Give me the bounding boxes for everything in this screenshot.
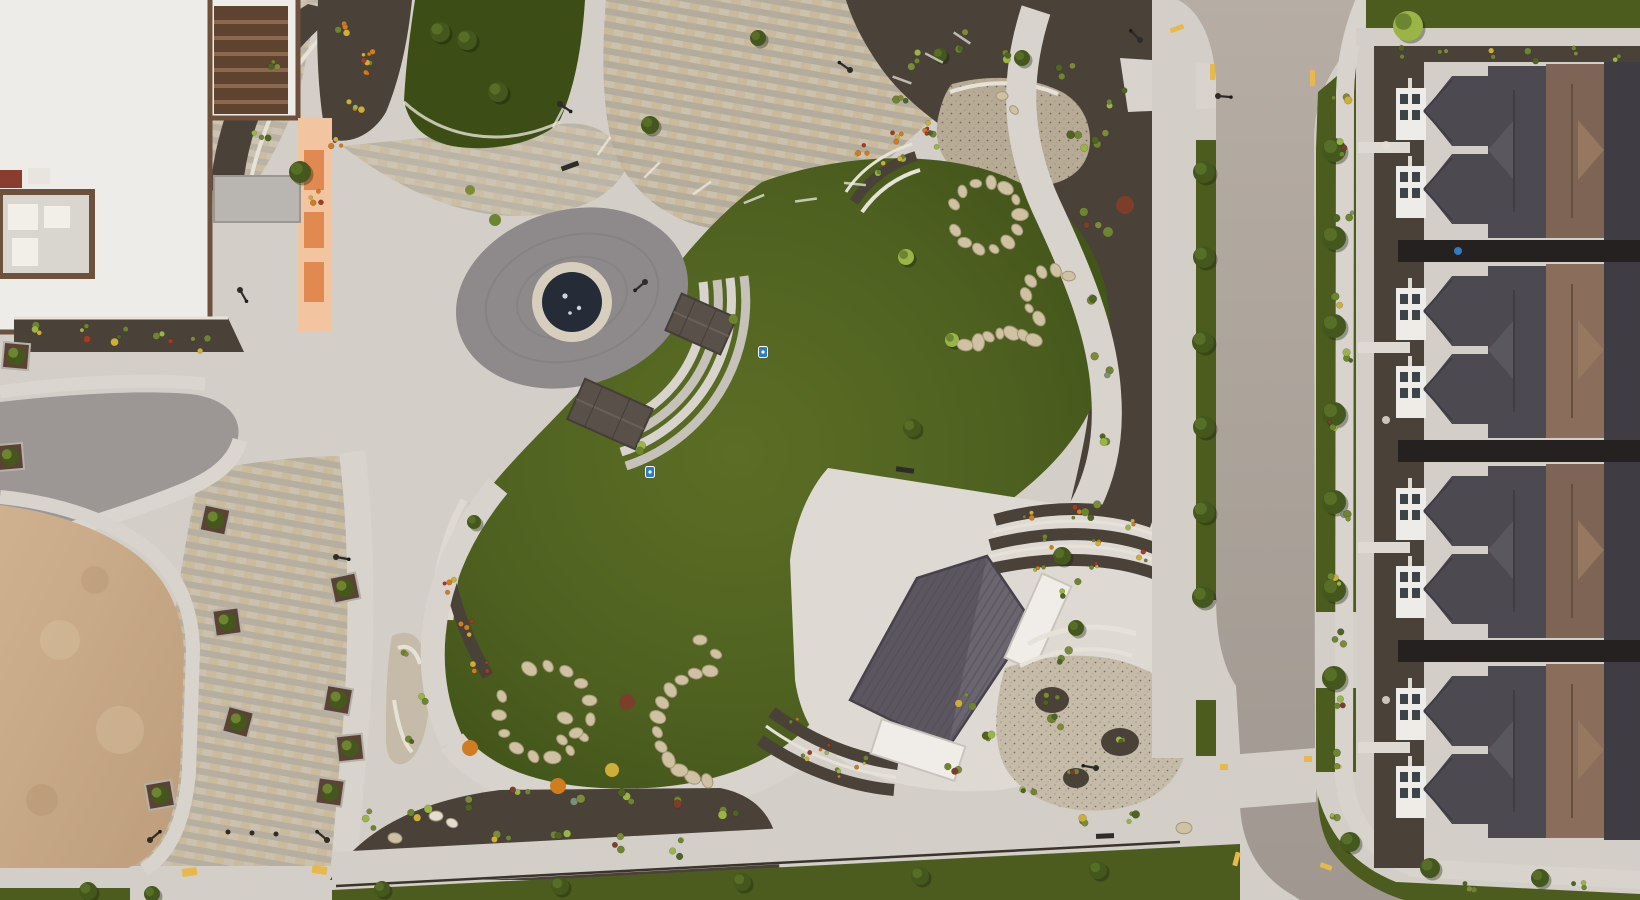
tree-canopy-highlight bbox=[1422, 860, 1433, 871]
shrub bbox=[525, 789, 531, 795]
park-side-sidewalk bbox=[1152, 0, 1196, 758]
shrub bbox=[1329, 424, 1335, 430]
shrub bbox=[353, 105, 358, 110]
landscape-dot bbox=[1382, 696, 1390, 704]
shrub bbox=[1107, 99, 1112, 104]
shrub bbox=[805, 757, 810, 762]
shrub bbox=[673, 799, 682, 808]
shrub bbox=[617, 833, 624, 840]
shrub bbox=[1079, 208, 1088, 217]
townhome-window bbox=[1400, 588, 1408, 598]
shrub bbox=[470, 619, 474, 623]
landscape-dot bbox=[226, 830, 231, 835]
street-lamp-base bbox=[642, 279, 648, 285]
shrub bbox=[1044, 692, 1050, 698]
shrub bbox=[1121, 87, 1127, 93]
shrub bbox=[894, 139, 899, 144]
tree-canopy-highlight bbox=[1054, 548, 1064, 558]
shrub bbox=[465, 796, 472, 803]
shrub bbox=[1055, 695, 1060, 700]
shrub bbox=[361, 58, 366, 63]
townhome-fence bbox=[1408, 756, 1412, 816]
landscape-dot bbox=[550, 778, 566, 794]
building-accent-panel-2 bbox=[304, 212, 324, 248]
alley-band-2 bbox=[1398, 440, 1640, 462]
townhome-far-roof bbox=[1604, 462, 1640, 640]
tree-canopy-highlight bbox=[1324, 668, 1337, 681]
tree-canopy-highlight bbox=[912, 868, 922, 878]
tree-planter bbox=[330, 573, 361, 604]
shrub bbox=[1072, 516, 1075, 519]
rooftop-unit-2 bbox=[44, 206, 70, 228]
boulder bbox=[970, 179, 982, 188]
fountain-jet-3 bbox=[568, 311, 572, 315]
landscape-dot bbox=[1382, 416, 1390, 424]
shrub bbox=[464, 625, 469, 630]
street-lamp-head bbox=[569, 110, 573, 114]
townhome-window bbox=[1412, 310, 1420, 320]
tree-canopy-highlight bbox=[552, 878, 562, 888]
shrub bbox=[1089, 295, 1097, 303]
shrub bbox=[1100, 438, 1108, 446]
boulder bbox=[586, 713, 596, 726]
shrub bbox=[612, 842, 618, 848]
townhome-fence bbox=[1408, 556, 1412, 616]
townhome-fence bbox=[1408, 678, 1412, 738]
tree-canopy-highlight bbox=[1195, 418, 1207, 430]
townhome-window bbox=[1400, 310, 1408, 320]
shrub bbox=[204, 335, 211, 342]
west-verge-grass bbox=[1196, 140, 1216, 600]
street-lamp-head bbox=[1129, 29, 1133, 33]
townhome-window bbox=[1412, 172, 1420, 182]
shrub bbox=[342, 24, 348, 30]
shrub bbox=[1118, 739, 1122, 743]
shrub bbox=[1059, 589, 1064, 594]
street-lamp-head bbox=[347, 557, 351, 561]
townhome-front-walk bbox=[1358, 342, 1410, 353]
shrub bbox=[363, 70, 368, 75]
shrub bbox=[1343, 349, 1351, 357]
shrub bbox=[1571, 881, 1576, 886]
shrub bbox=[1088, 514, 1094, 520]
shrub bbox=[1581, 880, 1586, 885]
townhome-window bbox=[1400, 494, 1408, 504]
townhome-building bbox=[1358, 62, 1640, 240]
townhome-fence bbox=[1408, 478, 1412, 538]
shrub bbox=[1031, 789, 1037, 795]
townhome-window bbox=[1400, 572, 1408, 582]
townhome-far-roof bbox=[1604, 662, 1640, 840]
tree-canopy-highlight bbox=[1090, 862, 1100, 872]
shrub bbox=[1337, 696, 1344, 703]
shrub bbox=[877, 170, 881, 174]
shrub bbox=[1350, 211, 1354, 215]
yellow-curb-marking bbox=[1220, 764, 1228, 770]
shrub bbox=[413, 814, 420, 821]
shrub bbox=[1080, 144, 1088, 152]
townhome-far-roof bbox=[1604, 262, 1640, 440]
tree-canopy-highlight bbox=[291, 163, 303, 175]
townhome-fence bbox=[1408, 356, 1412, 416]
townhome-window bbox=[1412, 372, 1420, 382]
townhome-window bbox=[1400, 372, 1408, 382]
tree-planter bbox=[0, 443, 24, 471]
shrub bbox=[470, 661, 476, 667]
shrub bbox=[819, 748, 822, 751]
shrub bbox=[1067, 131, 1075, 139]
street-lamp-base bbox=[1215, 93, 1221, 99]
boulder bbox=[582, 695, 597, 706]
shrub bbox=[881, 161, 886, 166]
townhome-window bbox=[1400, 788, 1408, 798]
shrub bbox=[422, 698, 429, 705]
tree-canopy-highlight bbox=[490, 84, 501, 95]
shrub bbox=[84, 324, 89, 329]
shrub bbox=[897, 156, 902, 161]
tree-planter bbox=[212, 607, 241, 636]
shrub bbox=[1491, 54, 1496, 59]
street-lamp-base bbox=[1093, 765, 1099, 771]
shrub bbox=[1060, 593, 1065, 598]
shrub bbox=[1399, 45, 1405, 51]
boulder bbox=[693, 635, 707, 645]
shrub bbox=[1400, 54, 1405, 59]
townhome-window bbox=[1400, 188, 1408, 198]
boulder bbox=[499, 729, 510, 737]
shrub bbox=[451, 577, 456, 582]
boulder bbox=[1011, 208, 1029, 221]
townhome-window bbox=[1412, 94, 1420, 104]
west-verge-grass-2 bbox=[1196, 700, 1216, 756]
townhome-fence bbox=[1408, 156, 1412, 216]
townhome-window bbox=[1400, 772, 1408, 782]
shrub bbox=[407, 809, 414, 816]
yellow-curb-marking bbox=[1210, 64, 1215, 80]
shrub bbox=[1332, 636, 1338, 642]
shrub bbox=[445, 590, 450, 595]
rooftop-grey-box bbox=[28, 168, 50, 184]
shrub bbox=[669, 848, 676, 855]
shrub bbox=[1049, 545, 1053, 549]
shrub bbox=[1132, 522, 1136, 526]
shrub bbox=[968, 702, 976, 710]
shrub bbox=[1052, 714, 1058, 720]
shrub bbox=[465, 804, 472, 811]
shrub bbox=[676, 853, 683, 860]
shrub bbox=[1094, 562, 1098, 566]
tree-planter bbox=[2, 342, 30, 370]
shrub bbox=[908, 63, 915, 70]
tree-canopy-highlight bbox=[751, 31, 760, 40]
shrub bbox=[1337, 581, 1342, 586]
shrub bbox=[895, 135, 899, 139]
shrub bbox=[1340, 703, 1346, 709]
shrub bbox=[1083, 222, 1090, 229]
shrub bbox=[1074, 578, 1081, 585]
shrub bbox=[1057, 659, 1062, 664]
shrub bbox=[555, 832, 562, 839]
shrub bbox=[925, 131, 929, 135]
building-accent-panel-3 bbox=[304, 262, 324, 302]
shrub bbox=[1074, 131, 1081, 138]
shrub bbox=[83, 335, 90, 342]
shrub bbox=[1463, 881, 1468, 886]
fountain-jet-2 bbox=[577, 306, 581, 310]
shrub bbox=[1132, 811, 1140, 819]
tree-canopy-highlight bbox=[734, 874, 744, 884]
townhome-far-roof bbox=[1604, 62, 1640, 240]
shrub bbox=[506, 835, 511, 840]
tree-canopy-highlight bbox=[1069, 621, 1078, 630]
shrub bbox=[1437, 49, 1442, 54]
street-lamp-base bbox=[1137, 37, 1143, 43]
shrub bbox=[168, 339, 173, 344]
shrub bbox=[117, 335, 122, 340]
boulder bbox=[429, 811, 443, 821]
shrub bbox=[1144, 559, 1147, 562]
accessible-marking-glyph bbox=[648, 470, 651, 473]
shrub bbox=[1042, 565, 1046, 569]
townhome-window bbox=[1412, 788, 1420, 798]
shrub bbox=[339, 144, 343, 148]
shrub bbox=[958, 46, 964, 52]
tree-canopy-highlight bbox=[1194, 333, 1206, 345]
tree-planter bbox=[222, 706, 254, 738]
shrub bbox=[951, 768, 958, 775]
townhome-window bbox=[1400, 110, 1408, 120]
aerial-photo-stage bbox=[0, 0, 1640, 900]
shrub bbox=[955, 700, 962, 707]
shrub bbox=[1341, 145, 1347, 151]
shrub bbox=[1333, 749, 1341, 757]
shrub bbox=[801, 754, 805, 758]
shrub bbox=[367, 809, 372, 814]
shrub bbox=[863, 755, 868, 760]
tree-planter bbox=[145, 780, 175, 810]
shrub bbox=[862, 143, 866, 147]
shrub bbox=[491, 836, 497, 842]
shrub bbox=[1070, 770, 1075, 775]
shrub bbox=[1346, 516, 1351, 521]
landscape-dot bbox=[1116, 196, 1134, 214]
accessible-marking-glyph bbox=[761, 350, 764, 353]
landscape-dot bbox=[1103, 227, 1113, 237]
boulder bbox=[1176, 822, 1192, 834]
shrub bbox=[1095, 541, 1100, 546]
shrub bbox=[1056, 64, 1063, 71]
shrub bbox=[153, 332, 160, 339]
street-lamp-head bbox=[245, 299, 249, 303]
shrub bbox=[1524, 48, 1531, 55]
townhome-building bbox=[1358, 262, 1640, 440]
shrub bbox=[1488, 48, 1493, 53]
shrub bbox=[1336, 302, 1342, 308]
shrub bbox=[899, 132, 903, 136]
alley-band-1 bbox=[1398, 240, 1640, 262]
southwest-grass bbox=[0, 888, 130, 900]
gravel-island-1 bbox=[1035, 687, 1069, 713]
tree-canopy-highlight bbox=[459, 32, 470, 43]
townhome-window bbox=[1400, 388, 1408, 398]
shrub bbox=[825, 751, 829, 755]
tree-canopy-highlight bbox=[1324, 492, 1337, 505]
shrub bbox=[1344, 96, 1352, 104]
shrub bbox=[458, 621, 463, 626]
shrub bbox=[1036, 566, 1040, 570]
townhome-window bbox=[1412, 710, 1420, 720]
shrub bbox=[1058, 73, 1065, 80]
shrub bbox=[964, 693, 968, 697]
shrub bbox=[328, 143, 334, 149]
landscape-dot bbox=[619, 694, 635, 710]
townhome-window bbox=[1400, 710, 1408, 720]
shrub bbox=[1349, 358, 1353, 362]
tree-canopy-highlight bbox=[642, 117, 652, 127]
landscape-dot bbox=[81, 566, 109, 594]
shrub bbox=[1089, 565, 1093, 569]
shrub bbox=[467, 632, 472, 637]
shrub bbox=[1127, 819, 1132, 824]
boulder bbox=[996, 92, 1008, 101]
tree-canopy-highlight bbox=[375, 882, 384, 891]
shrub bbox=[576, 794, 585, 803]
shrub bbox=[268, 63, 274, 69]
shrub bbox=[37, 330, 42, 335]
shrub bbox=[837, 775, 840, 778]
shrub bbox=[1339, 152, 1344, 157]
tree-canopy-highlight bbox=[1324, 404, 1337, 417]
tree-planter bbox=[336, 734, 365, 763]
shrub bbox=[1079, 814, 1087, 822]
shrub bbox=[1091, 352, 1099, 360]
tree-canopy-highlight bbox=[1195, 163, 1207, 175]
tree-canopy-highlight bbox=[1395, 13, 1412, 30]
shrub bbox=[1330, 813, 1334, 817]
shrub bbox=[310, 200, 316, 206]
townhome-window bbox=[1412, 510, 1420, 520]
shrub bbox=[333, 137, 338, 142]
landscape-dot bbox=[462, 740, 478, 756]
landscape-dot bbox=[1454, 247, 1462, 255]
street-lamp-head bbox=[1229, 95, 1233, 99]
shrub bbox=[1532, 58, 1539, 65]
shrub bbox=[1095, 222, 1102, 229]
street-lamp-head bbox=[315, 830, 319, 834]
townhome-window bbox=[1400, 694, 1408, 704]
landscape-dot bbox=[605, 763, 619, 777]
shrub bbox=[1125, 525, 1130, 530]
shrub bbox=[358, 106, 365, 113]
fountain-pool bbox=[542, 272, 602, 332]
building-main-roof bbox=[0, 0, 210, 332]
shrub bbox=[1072, 505, 1077, 510]
townhome-fence bbox=[1408, 78, 1412, 138]
shrub bbox=[111, 338, 119, 346]
tree-canopy-highlight bbox=[80, 883, 90, 893]
shrub bbox=[636, 447, 644, 455]
building-south-bed bbox=[14, 318, 244, 352]
townhome-window bbox=[1412, 188, 1420, 198]
shrub bbox=[370, 49, 376, 55]
yellow-curb-marking bbox=[1304, 756, 1312, 762]
shrub bbox=[1005, 52, 1011, 58]
townhome-window bbox=[1400, 94, 1408, 104]
aerial-park-scene bbox=[0, 0, 1640, 900]
shrub bbox=[678, 838, 684, 844]
shrub bbox=[1077, 509, 1082, 514]
crosswalk bbox=[1216, 748, 1316, 810]
tree-canopy-highlight bbox=[1195, 503, 1207, 515]
shrub bbox=[123, 326, 128, 331]
shrub bbox=[1571, 46, 1576, 51]
street-lamp-base bbox=[847, 67, 853, 73]
yellow-curb-marking bbox=[1310, 70, 1315, 86]
shrub bbox=[1340, 640, 1347, 647]
shrub bbox=[362, 53, 366, 57]
shrub bbox=[1069, 63, 1075, 69]
tree-canopy-highlight bbox=[934, 49, 942, 57]
shrub bbox=[1029, 511, 1033, 515]
shrub bbox=[80, 328, 84, 332]
shrub bbox=[251, 130, 256, 135]
shrub bbox=[1065, 646, 1073, 654]
shrub bbox=[1136, 555, 1142, 561]
townhome-window bbox=[1412, 572, 1420, 582]
street-lamp-base bbox=[324, 837, 330, 843]
tree-canopy-highlight bbox=[1195, 248, 1207, 260]
shrub bbox=[265, 135, 271, 141]
shrub bbox=[856, 150, 861, 155]
shrub bbox=[1029, 515, 1035, 521]
shrub bbox=[1141, 549, 1146, 554]
shrub bbox=[346, 99, 351, 104]
shrub bbox=[1043, 700, 1048, 705]
tree-canopy-highlight bbox=[1324, 316, 1337, 329]
shrub bbox=[1327, 573, 1334, 580]
shrub bbox=[485, 661, 489, 665]
shrub bbox=[1023, 515, 1026, 518]
tree-planter bbox=[200, 505, 231, 536]
shrub bbox=[191, 337, 196, 342]
tree-canopy-highlight bbox=[899, 250, 908, 259]
landscape-dot bbox=[250, 831, 255, 836]
shrub bbox=[1081, 508, 1089, 516]
shrub bbox=[926, 120, 931, 125]
shrub bbox=[1057, 724, 1064, 731]
shrub bbox=[617, 846, 624, 853]
shrub bbox=[1092, 539, 1095, 542]
street-lamp-head bbox=[633, 289, 637, 293]
tree-canopy-highlight bbox=[904, 420, 914, 430]
townhome-window bbox=[1412, 110, 1420, 120]
shrub bbox=[1336, 138, 1343, 145]
shrub bbox=[510, 787, 516, 793]
townhome-window bbox=[1412, 588, 1420, 598]
shrub bbox=[898, 95, 903, 100]
shrub bbox=[1328, 420, 1332, 424]
southwest-walk bbox=[0, 868, 130, 888]
rooftop-unit-1 bbox=[8, 204, 38, 230]
tree-canopy-highlight bbox=[946, 334, 954, 342]
shrub bbox=[1043, 539, 1046, 542]
street-lamp-base bbox=[557, 101, 563, 107]
townhome-building bbox=[1358, 662, 1640, 840]
landscape-dot bbox=[26, 784, 58, 816]
shrub bbox=[335, 26, 342, 33]
townhome-window bbox=[1412, 388, 1420, 398]
shrub bbox=[1613, 57, 1618, 62]
